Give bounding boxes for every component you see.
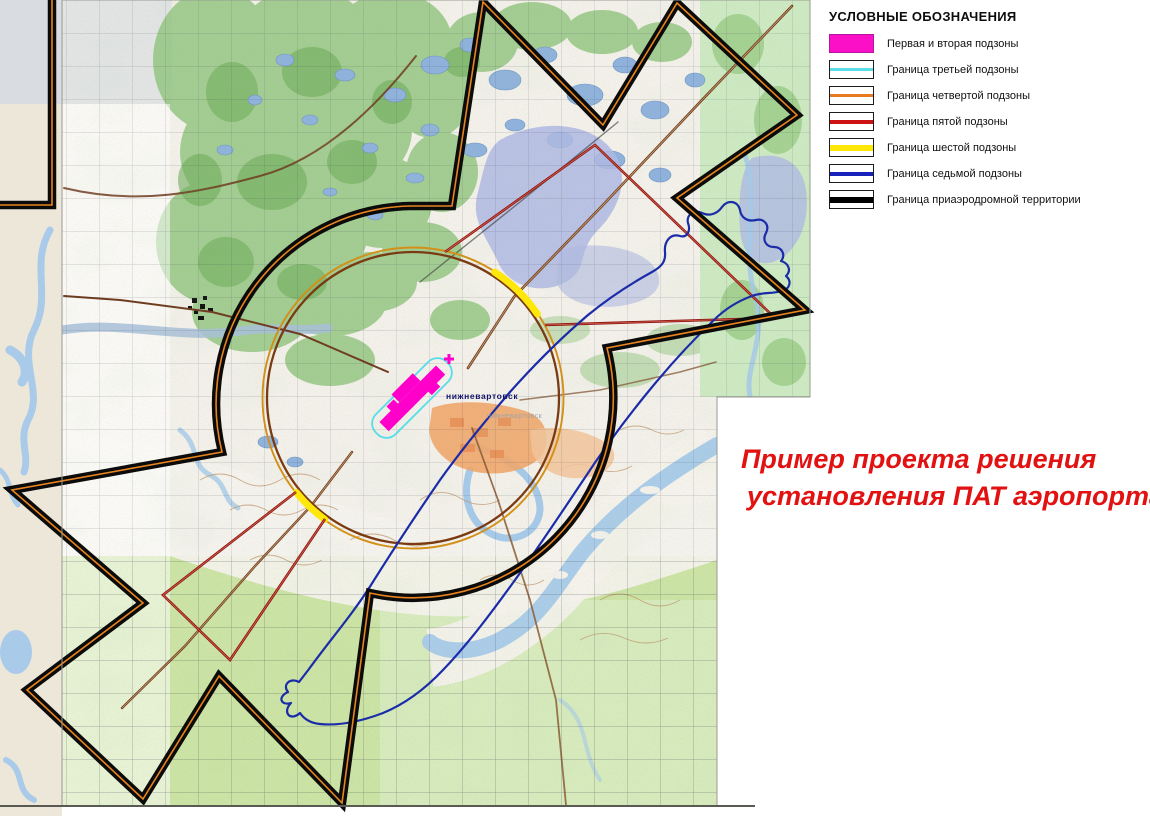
- legend-label: Граница третьей подзоны: [887, 64, 1019, 76]
- legend-item-third-subzone: Граница третьей подзоны: [829, 60, 1139, 79]
- legend-label: Первая и вторая подзоны: [887, 38, 1018, 50]
- example-annotation: Пример проекта решения установления ПАТ …: [741, 441, 1150, 515]
- legend-swatch-fourth-subzone: [829, 86, 874, 105]
- annotation-line-2: установления ПАТ аэропорта: [741, 478, 1150, 515]
- map-texture-noise: [62, 0, 810, 806]
- legend-item-first-second-subzones: Первая и вторая подзоны: [829, 34, 1139, 53]
- legend-item-fourth-subzone: Граница четвертой подзоны: [829, 86, 1139, 105]
- legend-swatch-first-second-subzones: [829, 34, 874, 53]
- legend-item-fifth-subzone: Граница пятой подзоны: [829, 112, 1139, 131]
- legend-swatch-sixth-subzone: [829, 138, 874, 157]
- legend-label: Граница приаэродромной территории: [887, 194, 1081, 206]
- legend-label: Граница седьмой подзоны: [887, 168, 1022, 180]
- legend-label: Граница пятой подзоны: [887, 116, 1008, 128]
- legend-swatch-aerodrome-territory: [829, 190, 874, 209]
- map-bottom-border: [0, 805, 755, 807]
- annotation-line-1: Пример проекта решения: [741, 441, 1150, 478]
- legend-swatch-fifth-subzone: [829, 112, 874, 131]
- legend-title: УСЛОВНЫЕ ОБОЗНАЧЕНИЯ: [829, 9, 1139, 24]
- legend-label: Граница шестой подзоны: [887, 142, 1016, 154]
- legend-swatch-third-subzone: [829, 60, 874, 79]
- legend-panel: УСЛОВНЫЕ ОБОЗНАЧЕНИЯ Первая и вторая под…: [829, 9, 1139, 209]
- city-label: нижневартовск: [446, 391, 518, 401]
- legend-item-aerodrome-territory: Граница приаэродромной территории: [829, 190, 1139, 209]
- legend-item-seventh-subzone: Граница седьмой подзоны: [829, 164, 1139, 183]
- screenshot-root: нижневартовск нижневартовск УСЛОВНЫЕ ОБО…: [0, 0, 1150, 816]
- legend-item-sixth-subzone: Граница шестой подзоны: [829, 138, 1139, 157]
- legend-swatch-seventh-subzone: [829, 164, 874, 183]
- legend-label: Граница четвертой подзоны: [887, 90, 1030, 102]
- city-label-ghost: нижневартовск: [487, 413, 543, 420]
